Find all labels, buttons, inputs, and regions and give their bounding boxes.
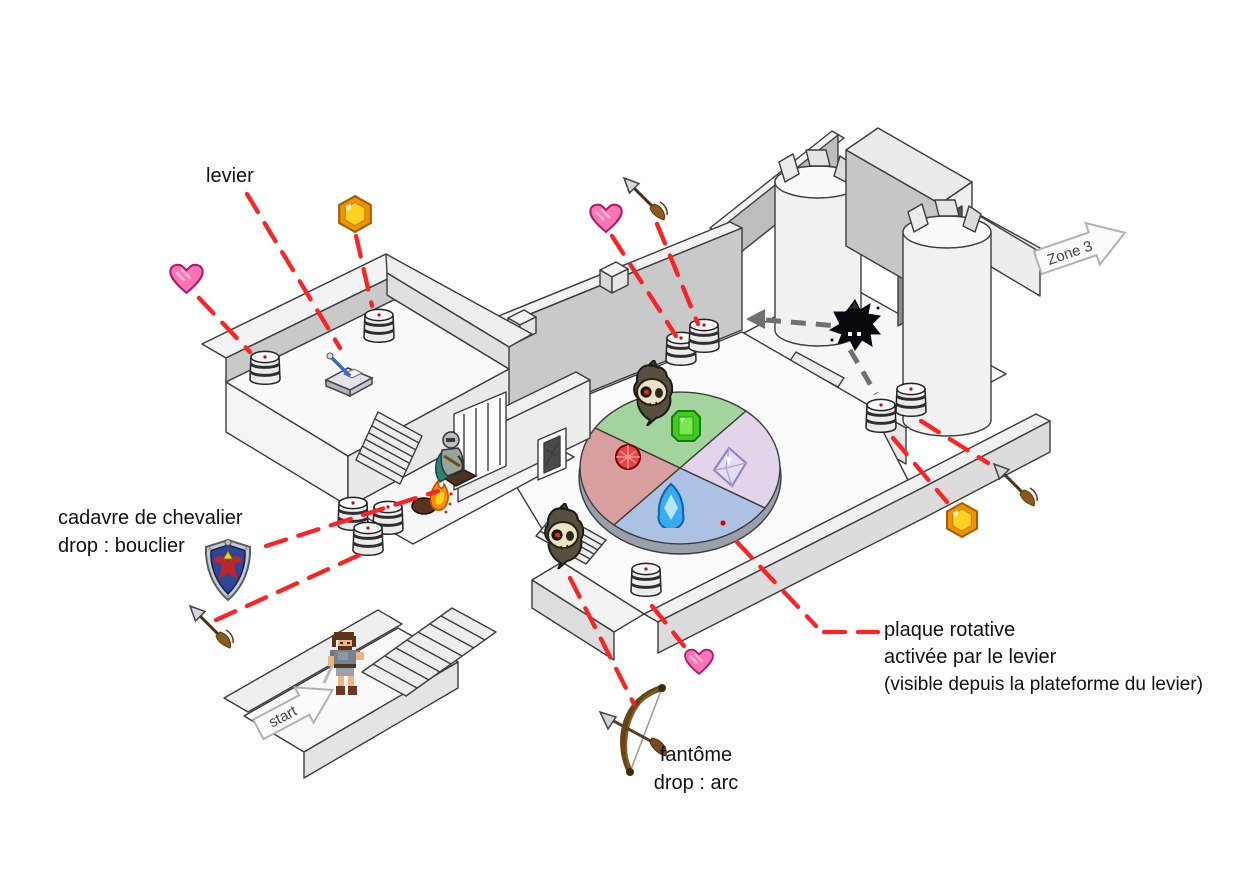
knight-label-line2: drop : bouclier (58, 532, 243, 560)
plate-label-line1: plaque rotative (884, 617, 1203, 644)
level-design-diagram: { "labels": { "lever_label": "levier", "… (0, 0, 1240, 874)
plate-label-line2: activée par le levier (884, 644, 1203, 671)
rotating-plate-label: plaque rotative activée par le levier (v… (884, 617, 1203, 698)
barrel-tower-1 (866, 399, 896, 432)
gem-pickup-1 (339, 196, 371, 232)
plate-marker-dot (720, 520, 725, 525)
plate-gem-ruby (616, 445, 640, 469)
ghost-label-line1: fantôme (636, 741, 756, 769)
arrow-pickup-3 (624, 178, 667, 220)
zone3-exit-arrow: Zone 3 (1031, 212, 1132, 284)
gem-pickup-2 (947, 503, 977, 537)
knight-corpse-label: cadavre de chevalier drop : bouclier (58, 504, 243, 560)
patrol-arrowhead (746, 309, 765, 329)
plate-gem-emerald (672, 411, 700, 441)
lever-label: levier (206, 165, 254, 188)
knight-label-line1: cadavre de chevalier (58, 504, 243, 532)
barrel-hall-2 (689, 319, 719, 352)
barrel-lever-room-left (250, 351, 280, 384)
plate-label-line3: (visible depuis la plateforme du levier) (884, 671, 1203, 698)
ghost-label-line2: drop : arc (636, 769, 756, 797)
ghost-drop-label: fantôme drop : arc (636, 741, 756, 797)
barrel-cache-3 (353, 522, 383, 555)
arrow-pickup-1 (190, 606, 233, 648)
heart-pickup-1 (170, 265, 202, 293)
barrel-front (631, 563, 661, 596)
barrel-tower-2 (896, 383, 926, 416)
heart-pickup-3 (685, 650, 713, 674)
heart-pickup-2 (590, 205, 622, 232)
barrel-lever-room-right (364, 309, 394, 342)
start-corridor (224, 608, 496, 778)
